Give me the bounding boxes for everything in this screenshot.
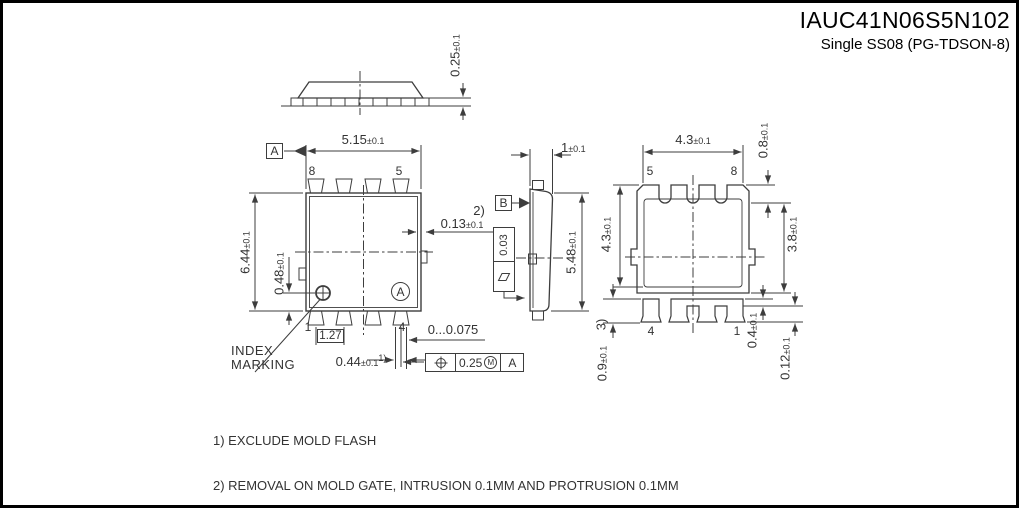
dim-lead-protrusion-label: 0...0.075: [422, 322, 484, 337]
dim-lead-tip-label: 0.8±0.1: [756, 111, 773, 171]
position-tolerance-frame: 0.25 M A: [425, 353, 524, 372]
dim-body-length-label: 6.44±0.1: [238, 218, 255, 288]
datum-b-box: B: [495, 195, 512, 211]
dim-body-height-label: 5.48±0.1: [564, 218, 581, 288]
dim-gate-pad-label: 0.9±0.1: [595, 334, 612, 394]
pin-1-label-right: 1: [730, 324, 744, 338]
dim-pad-width-label: 4.3±0.1: [599, 200, 616, 270]
pin-5-label-right: 5: [643, 164, 657, 178]
dim-index-offset-label: 0.48±0.1: [272, 239, 289, 309]
dim-pitch-box: 1.27: [317, 329, 344, 343]
dim-body-thickness-label: 1±0.1: [561, 140, 609, 157]
notes-block: 1) EXCLUDE MOLD FLASH 2) REMOVAL ON MOLD…: [213, 405, 740, 508]
dim-pad-length-label: 3.8±0.1: [785, 200, 802, 270]
pin-8-label-right: 8: [727, 164, 741, 178]
mmc-modifier-icon: M: [484, 356, 497, 369]
pin-8-label: 8: [305, 164, 319, 178]
position-tolerance-datum: A: [501, 354, 523, 371]
flatness-value: 0.03: [494, 228, 514, 262]
dim-lead-span-label: 4.3±0.1: [653, 132, 733, 149]
note-ref-3-label: 3): [594, 315, 609, 335]
datum-a-box: A: [266, 143, 283, 159]
note-line-2: 2) REMOVAL ON MOLD GATE, INTRUSION 0.1MM…: [213, 479, 740, 494]
title-block: IAUC41N06S5N102 Single SS08 (PG-TDSON-8): [800, 7, 1010, 53]
dim-lead-width-label: 0.44±0.11): [331, 351, 391, 371]
flatness-tolerance-frame: 0.03: [493, 227, 515, 292]
dim-body-width-label: 5.15±0.1: [323, 132, 403, 149]
position-symbol-icon: [426, 354, 456, 371]
pin-5-label: 5: [392, 164, 406, 178]
index-marking-label: INDEX MARKING: [231, 344, 295, 372]
position-tolerance-value: 0.25 M: [456, 354, 501, 371]
pin-4-label-right: 4: [644, 324, 658, 338]
dim-lead-foot-label: 0.4±0.1: [745, 301, 762, 361]
datum-target-a: A: [391, 282, 410, 301]
pin-4-label: 4: [395, 320, 409, 334]
pin-1-label: 1: [301, 320, 315, 334]
part-number: IAUC41N06S5N102: [800, 7, 1010, 34]
note-line-1: 1) EXCLUDE MOLD FLASH: [213, 434, 740, 449]
dim-lead-thickness-label: 0.12±0.1: [778, 327, 795, 391]
package-drawing-page: IAUC41N06S5N102 Single SS08 (PG-TDSON-8)…: [0, 0, 1019, 508]
flatness-symbol-icon: [494, 262, 514, 291]
dim-standoff-label: 0.25±0.1: [448, 27, 465, 85]
package-name: Single SS08 (PG-TDSON-8): [800, 36, 1010, 53]
dim-mold-gate-label: 0.13±0.1: [432, 216, 492, 233]
